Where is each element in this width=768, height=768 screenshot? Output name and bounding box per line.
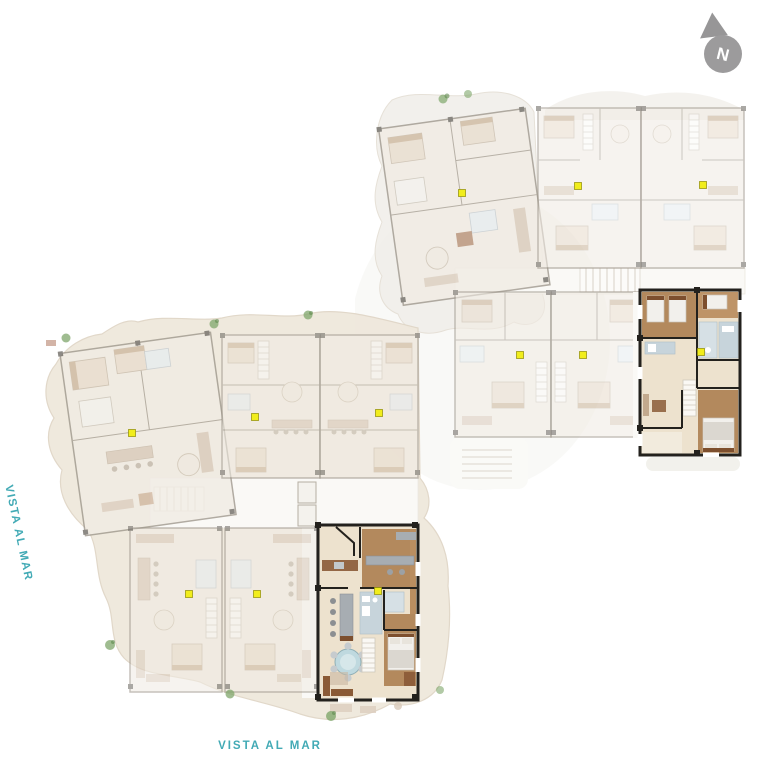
stairs-icon bbox=[206, 598, 217, 638]
bed bbox=[544, 116, 574, 138]
washbasin bbox=[722, 326, 734, 332]
stairs-icon bbox=[258, 341, 269, 379]
shower bbox=[362, 606, 370, 616]
bed bbox=[703, 418, 734, 452]
terrace-strip bbox=[646, 457, 740, 471]
lower-floor-plan bbox=[28, 310, 460, 742]
bed bbox=[388, 634, 414, 670]
sofa bbox=[643, 394, 649, 416]
dining-table bbox=[154, 610, 174, 630]
unit-lower-highlighted[interactable] bbox=[315, 522, 421, 703]
bed bbox=[172, 644, 202, 670]
elevator bbox=[298, 505, 316, 526]
bed bbox=[460, 117, 495, 145]
stairs-icon bbox=[583, 114, 593, 150]
stairs-icon bbox=[362, 638, 375, 672]
bathroom bbox=[460, 346, 484, 362]
unit-location-marker bbox=[129, 430, 136, 437]
bed bbox=[462, 300, 492, 322]
bed bbox=[703, 295, 727, 309]
unit-location-marker bbox=[375, 588, 382, 595]
unit-location-marker bbox=[252, 414, 259, 421]
sofa bbox=[146, 674, 170, 682]
sofa bbox=[323, 676, 330, 696]
terrace-floor bbox=[642, 432, 682, 453]
unit-location-marker bbox=[700, 182, 707, 189]
unit-location-marker bbox=[698, 349, 705, 356]
dining-table bbox=[282, 382, 302, 402]
unit-upper-a-tilted[interactable] bbox=[376, 106, 550, 305]
unit-location-marker bbox=[254, 591, 261, 598]
rug bbox=[330, 672, 348, 685]
unit-lower-e[interactable] bbox=[225, 526, 319, 692]
unit-lower-d[interactable] bbox=[128, 526, 222, 692]
bathroom bbox=[145, 348, 171, 369]
dining-table bbox=[611, 125, 629, 143]
bed bbox=[492, 382, 524, 408]
bathroom bbox=[228, 394, 250, 410]
toilet bbox=[373, 598, 378, 603]
kitchen-counter bbox=[136, 534, 174, 543]
wood-floor bbox=[410, 529, 416, 614]
elevator bbox=[298, 482, 316, 503]
unit-upper-d[interactable] bbox=[453, 290, 551, 437]
sofa bbox=[462, 416, 492, 425]
rug bbox=[138, 492, 154, 506]
sofa bbox=[331, 689, 353, 696]
unit-upper-b[interactable] bbox=[536, 106, 641, 268]
stairs-icon bbox=[580, 268, 640, 292]
bathroom bbox=[384, 592, 404, 612]
rug bbox=[456, 231, 474, 247]
unit-upper-highlighted[interactable] bbox=[637, 287, 743, 458]
bed bbox=[556, 226, 588, 250]
bed bbox=[79, 397, 114, 427]
unit-location-marker bbox=[459, 190, 466, 197]
bed bbox=[228, 343, 254, 363]
corridor-stub bbox=[450, 437, 528, 489]
unit-location-marker bbox=[575, 183, 582, 190]
toilet bbox=[705, 347, 711, 353]
stairs-icon bbox=[683, 380, 696, 416]
bed bbox=[69, 357, 109, 390]
bathroom bbox=[196, 560, 216, 588]
bed bbox=[394, 177, 427, 205]
kitchen-counter bbox=[544, 186, 574, 195]
unit-location-marker bbox=[376, 410, 383, 417]
rug bbox=[652, 400, 666, 412]
unit-lower-b[interactable] bbox=[220, 333, 320, 478]
unit-upper-c[interactable] bbox=[641, 106, 746, 268]
bed bbox=[114, 346, 147, 374]
washbasin bbox=[362, 596, 370, 602]
brochure-canvas: N VISTA AL MAR VISTA AL MAR bbox=[0, 0, 768, 768]
bed bbox=[236, 448, 266, 472]
unit-location-marker bbox=[580, 352, 587, 359]
unit-location-marker bbox=[186, 591, 193, 598]
vista-al-mar-label-bottom: VISTA AL MAR bbox=[218, 740, 322, 752]
unit-lower-a-tilted[interactable] bbox=[58, 330, 236, 536]
bathroom bbox=[592, 204, 618, 220]
stairs-icon bbox=[536, 362, 547, 402]
bathroom bbox=[469, 210, 498, 233]
sofa bbox=[136, 650, 145, 678]
desk bbox=[404, 672, 415, 686]
north-compass: N bbox=[690, 6, 754, 86]
bed bbox=[388, 133, 425, 163]
unit-location-marker bbox=[517, 352, 524, 359]
shower bbox=[648, 344, 656, 352]
unit-lower-c[interactable] bbox=[320, 333, 420, 478]
